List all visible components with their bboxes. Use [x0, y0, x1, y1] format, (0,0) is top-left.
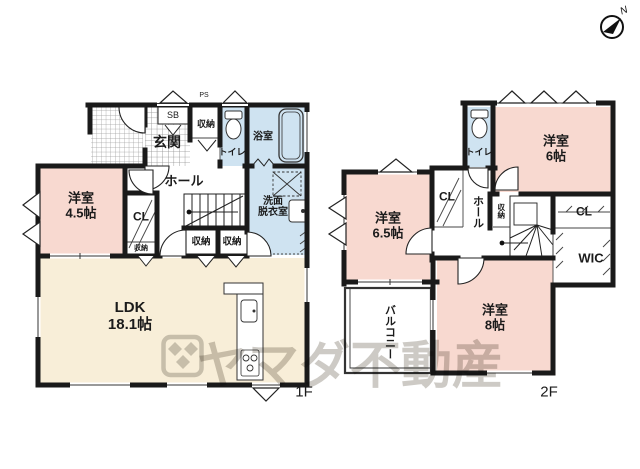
floorplan: 玄関 SB PS 収納 トイレ 浴室 ホール 洋室 4.5帖 CL 収納 収納 …	[0, 0, 640, 469]
room-label-bedroom-6: 洋室 6帖	[543, 134, 569, 163]
room-label-bedroom-45: 洋室 4.5帖	[65, 191, 96, 220]
room-label-shoe-box: SB	[167, 110, 179, 120]
toilet-icon-1f	[225, 111, 242, 139]
room-label-closet-right-2f: CL	[576, 205, 592, 218]
room-label-closet-left-2f: CL	[439, 190, 455, 203]
room-label-storage-b: 収納	[222, 238, 241, 249]
compass-icon	[601, 16, 623, 38]
room-label-hall-2f: ホール	[472, 196, 483, 229]
floor1-stairs	[184, 194, 245, 228]
room-label-storage-top: 収納	[197, 119, 215, 129]
room-label-entrance: 玄関	[153, 135, 181, 151]
room-label-pipe-space: PS	[199, 92, 208, 100]
room-label-ldk: LDK 18.1帖	[108, 300, 152, 334]
room-label-bathroom: 浴室	[253, 131, 273, 142]
watermark-text: ヤマダ不動産	[197, 324, 503, 398]
room-label-storage-2f: 収納	[497, 204, 505, 219]
room-label-closet-1f: CL	[133, 210, 149, 223]
room-label-storage-a: 収納	[191, 238, 210, 249]
floor2-stairs	[500, 196, 553, 257]
toilet-icon-2f	[471, 110, 488, 138]
room-label-washroom: 洗面 脱衣室	[258, 196, 288, 218]
room-label-storage-small: 収納	[134, 245, 148, 253]
room-label-hall-1f: ホール	[164, 175, 203, 190]
room-label-bedroom-65: 洋室 6.5帖	[372, 211, 403, 240]
room-label-toilet-1f: トイレ	[218, 147, 245, 157]
room-label-toilet-2f: トイレ	[465, 147, 492, 157]
room-label-wic: WIC	[578, 252, 603, 267]
floor2-tag: 2F	[540, 385, 558, 402]
